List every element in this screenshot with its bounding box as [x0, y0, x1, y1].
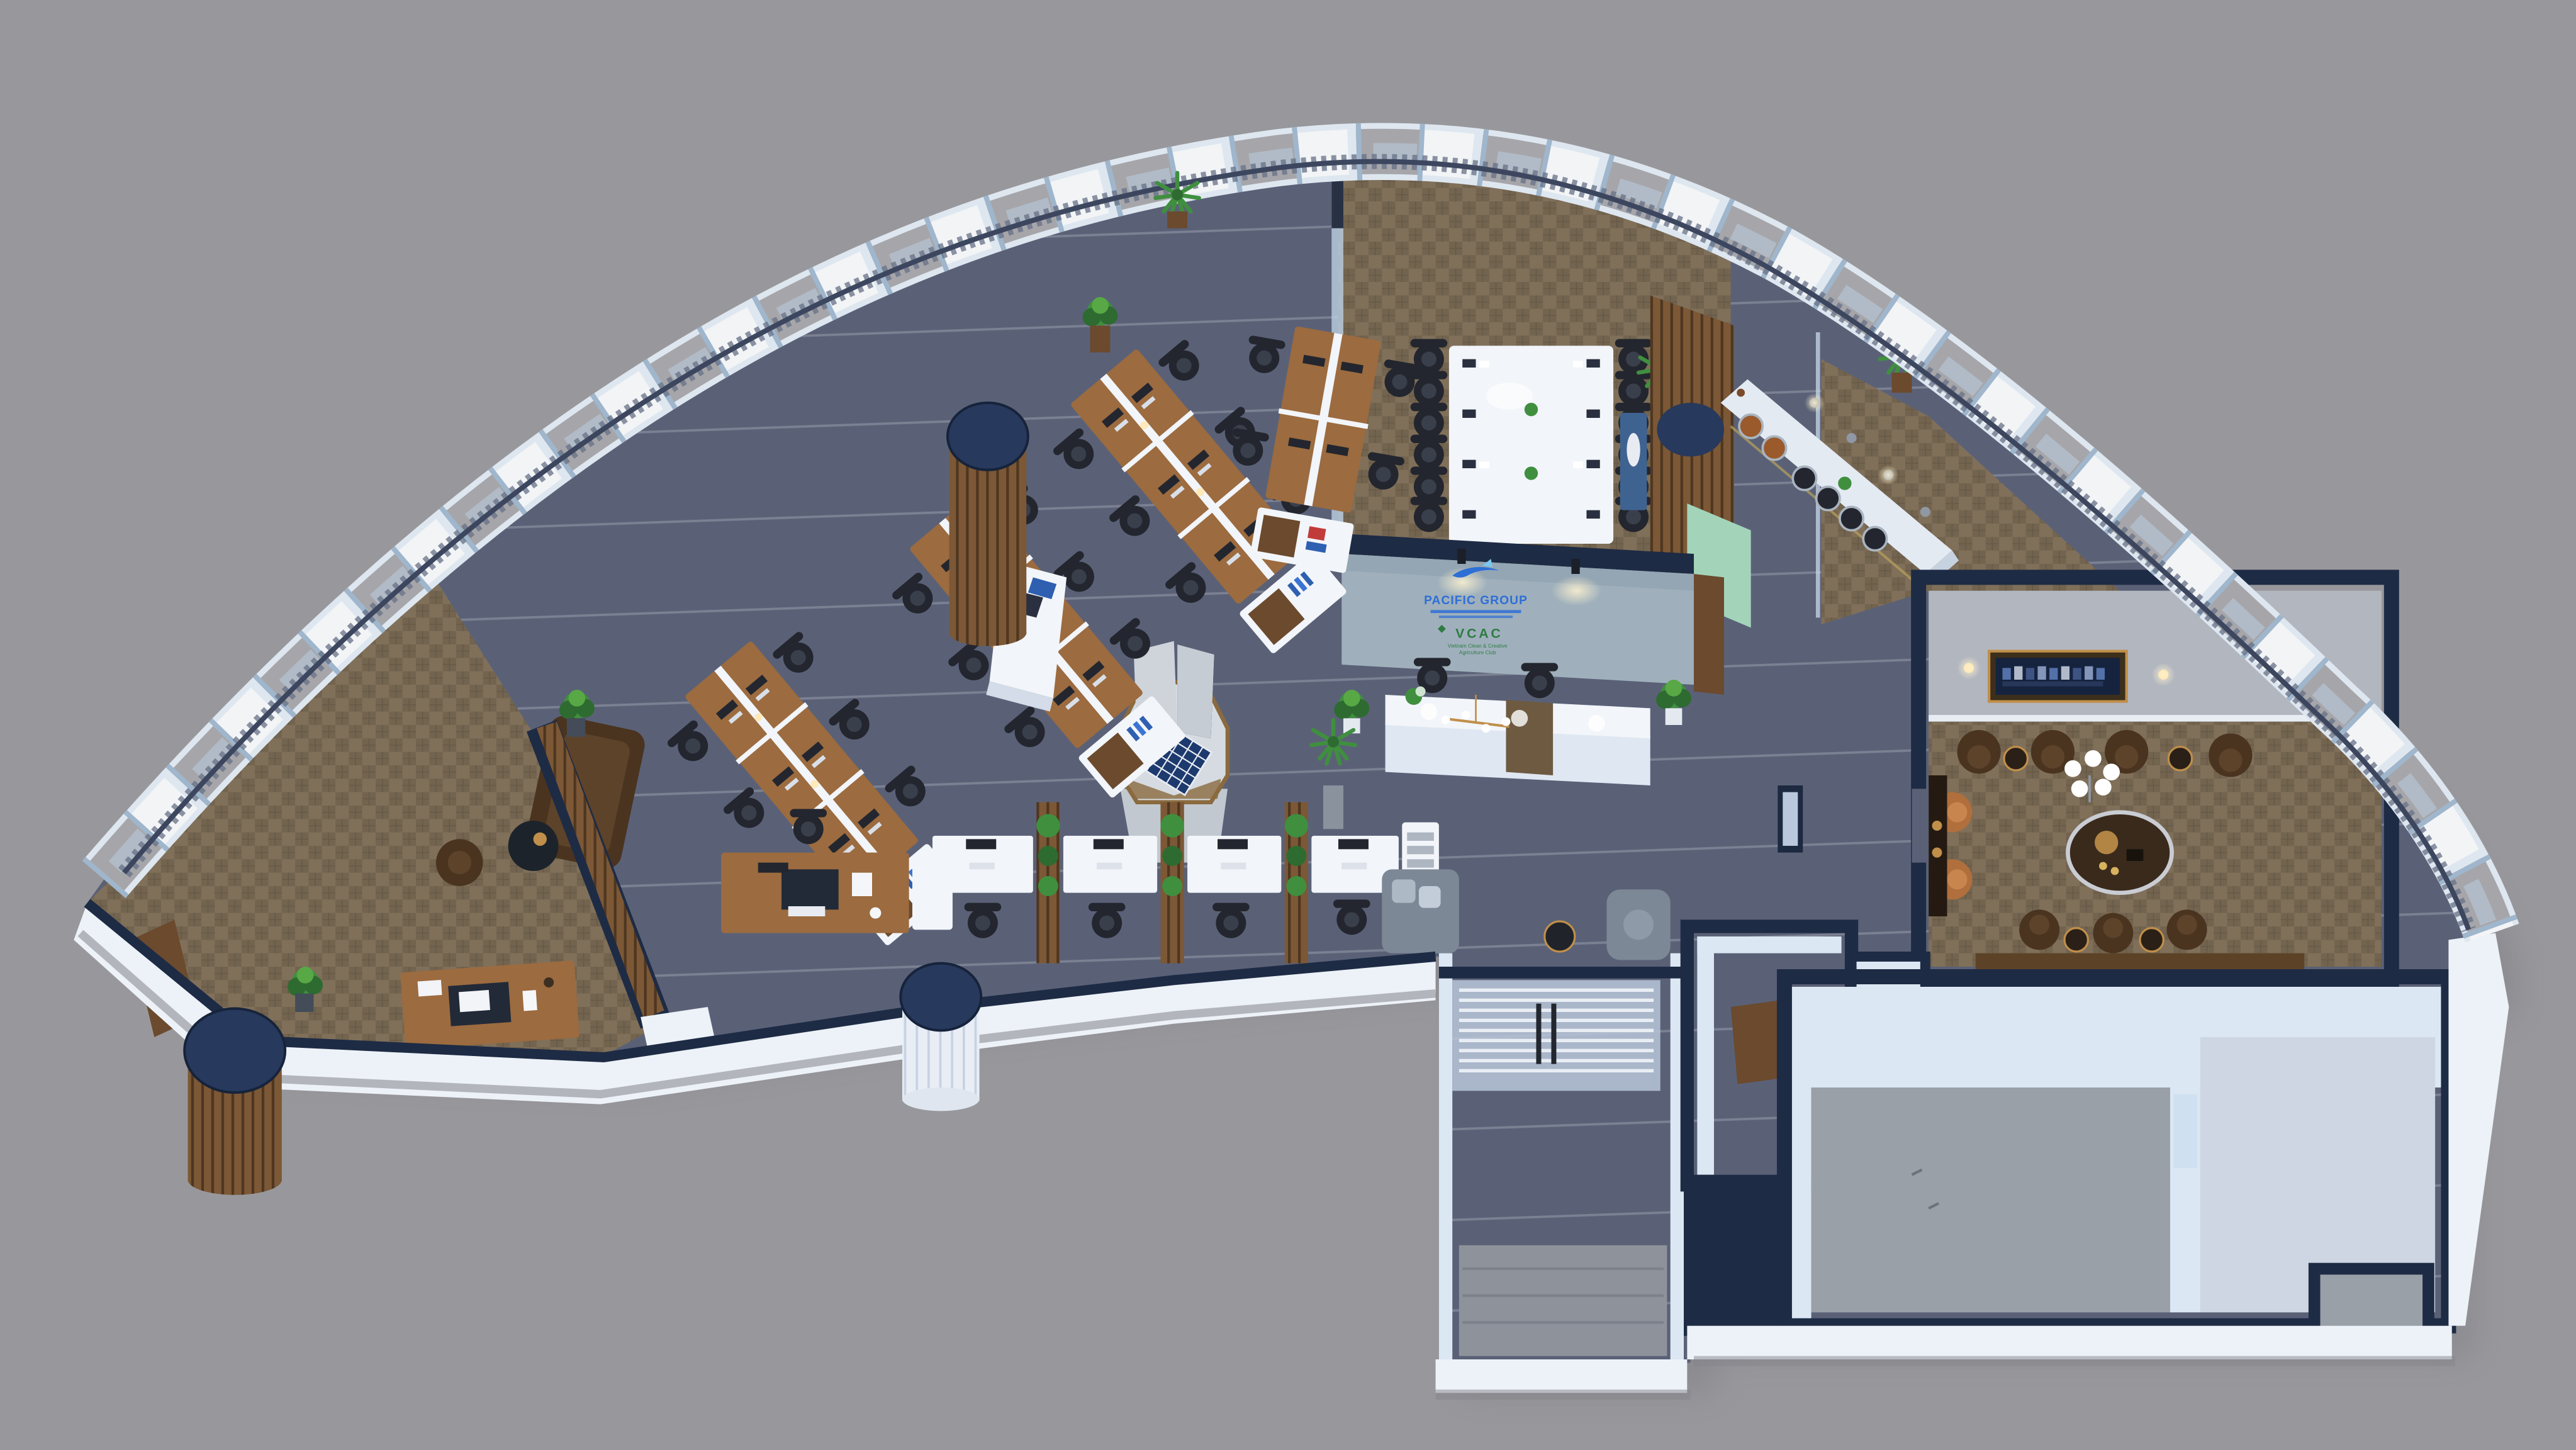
door-opening	[2173, 1094, 2197, 1168]
floorplan-svg: PACIFIC GROUP VCAC Vietnam Clean & Creat…	[0, 0, 2576, 1450]
interior-partition	[2170, 1037, 2200, 1312]
planter-box	[1285, 802, 1308, 964]
group-photo-frame	[1989, 651, 2127, 702]
tagline-bar	[1439, 615, 1513, 618]
workstation-desk	[1187, 836, 1281, 893]
executive-desk	[400, 960, 580, 1050]
pillow	[1392, 879, 1415, 902]
column-center-white	[900, 964, 981, 1111]
table-plant-icon	[1525, 403, 1538, 416]
column-mid-office	[948, 403, 1028, 646]
workstation-desk	[932, 836, 1033, 893]
column-cap	[1657, 403, 1724, 456]
desk-bronze-stripe	[1506, 700, 1553, 775]
spotlight-icon	[1457, 549, 1465, 564]
planter-box	[1036, 802, 1060, 964]
papers	[459, 990, 490, 1012]
gray-floor	[1812, 1087, 2170, 1312]
club-name-line1: Vietnam Clean & Creative	[1448, 643, 1508, 649]
side-table	[2140, 928, 2163, 952]
lounge-armchairs-bottom	[2019, 909, 2207, 953]
club-abbr: VCAC	[1455, 626, 1503, 641]
club-name-line2: Agriculture Club	[1459, 649, 1496, 655]
workstation-desk	[1063, 836, 1157, 893]
side-table	[1545, 921, 1575, 952]
glass-entry-door	[1452, 980, 1660, 1091]
console-cabinet	[1929, 775, 1947, 916]
tagline-bar	[1431, 610, 1521, 613]
coffee-table	[508, 821, 559, 871]
counter-plant-icon	[1838, 476, 1851, 490]
column-southwest	[184, 1009, 285, 1195]
pillow	[1419, 886, 1441, 908]
door-handle-icon	[1551, 1004, 1556, 1064]
wall-mass	[1684, 1175, 1791, 1336]
lounge-center-table	[2068, 812, 2171, 893]
entry-landing	[1459, 1245, 1667, 1356]
door-handle-icon	[1536, 1004, 1541, 1064]
sculpture	[1627, 433, 1640, 466]
office-floorplan-render: PACIFIC GROUP VCAC Vietnam Clean & Creat…	[0, 0, 2576, 1450]
company-name: PACIFIC GROUP	[1424, 594, 1528, 607]
side-table	[2168, 747, 2192, 770]
lounge-door-opening	[1912, 789, 1929, 862]
unfurnished-room	[1784, 977, 2448, 1346]
monitor-icon	[758, 863, 788, 873]
planter-box	[1160, 802, 1184, 964]
table-plant-icon	[1525, 466, 1538, 480]
spotlight-icon	[1571, 559, 1579, 574]
wall-wood-edge	[1694, 574, 1724, 695]
vip-lounge	[1912, 577, 2392, 980]
side-table	[2004, 747, 2027, 770]
side-table	[2064, 928, 2088, 952]
cup-icon	[1737, 389, 1745, 397]
